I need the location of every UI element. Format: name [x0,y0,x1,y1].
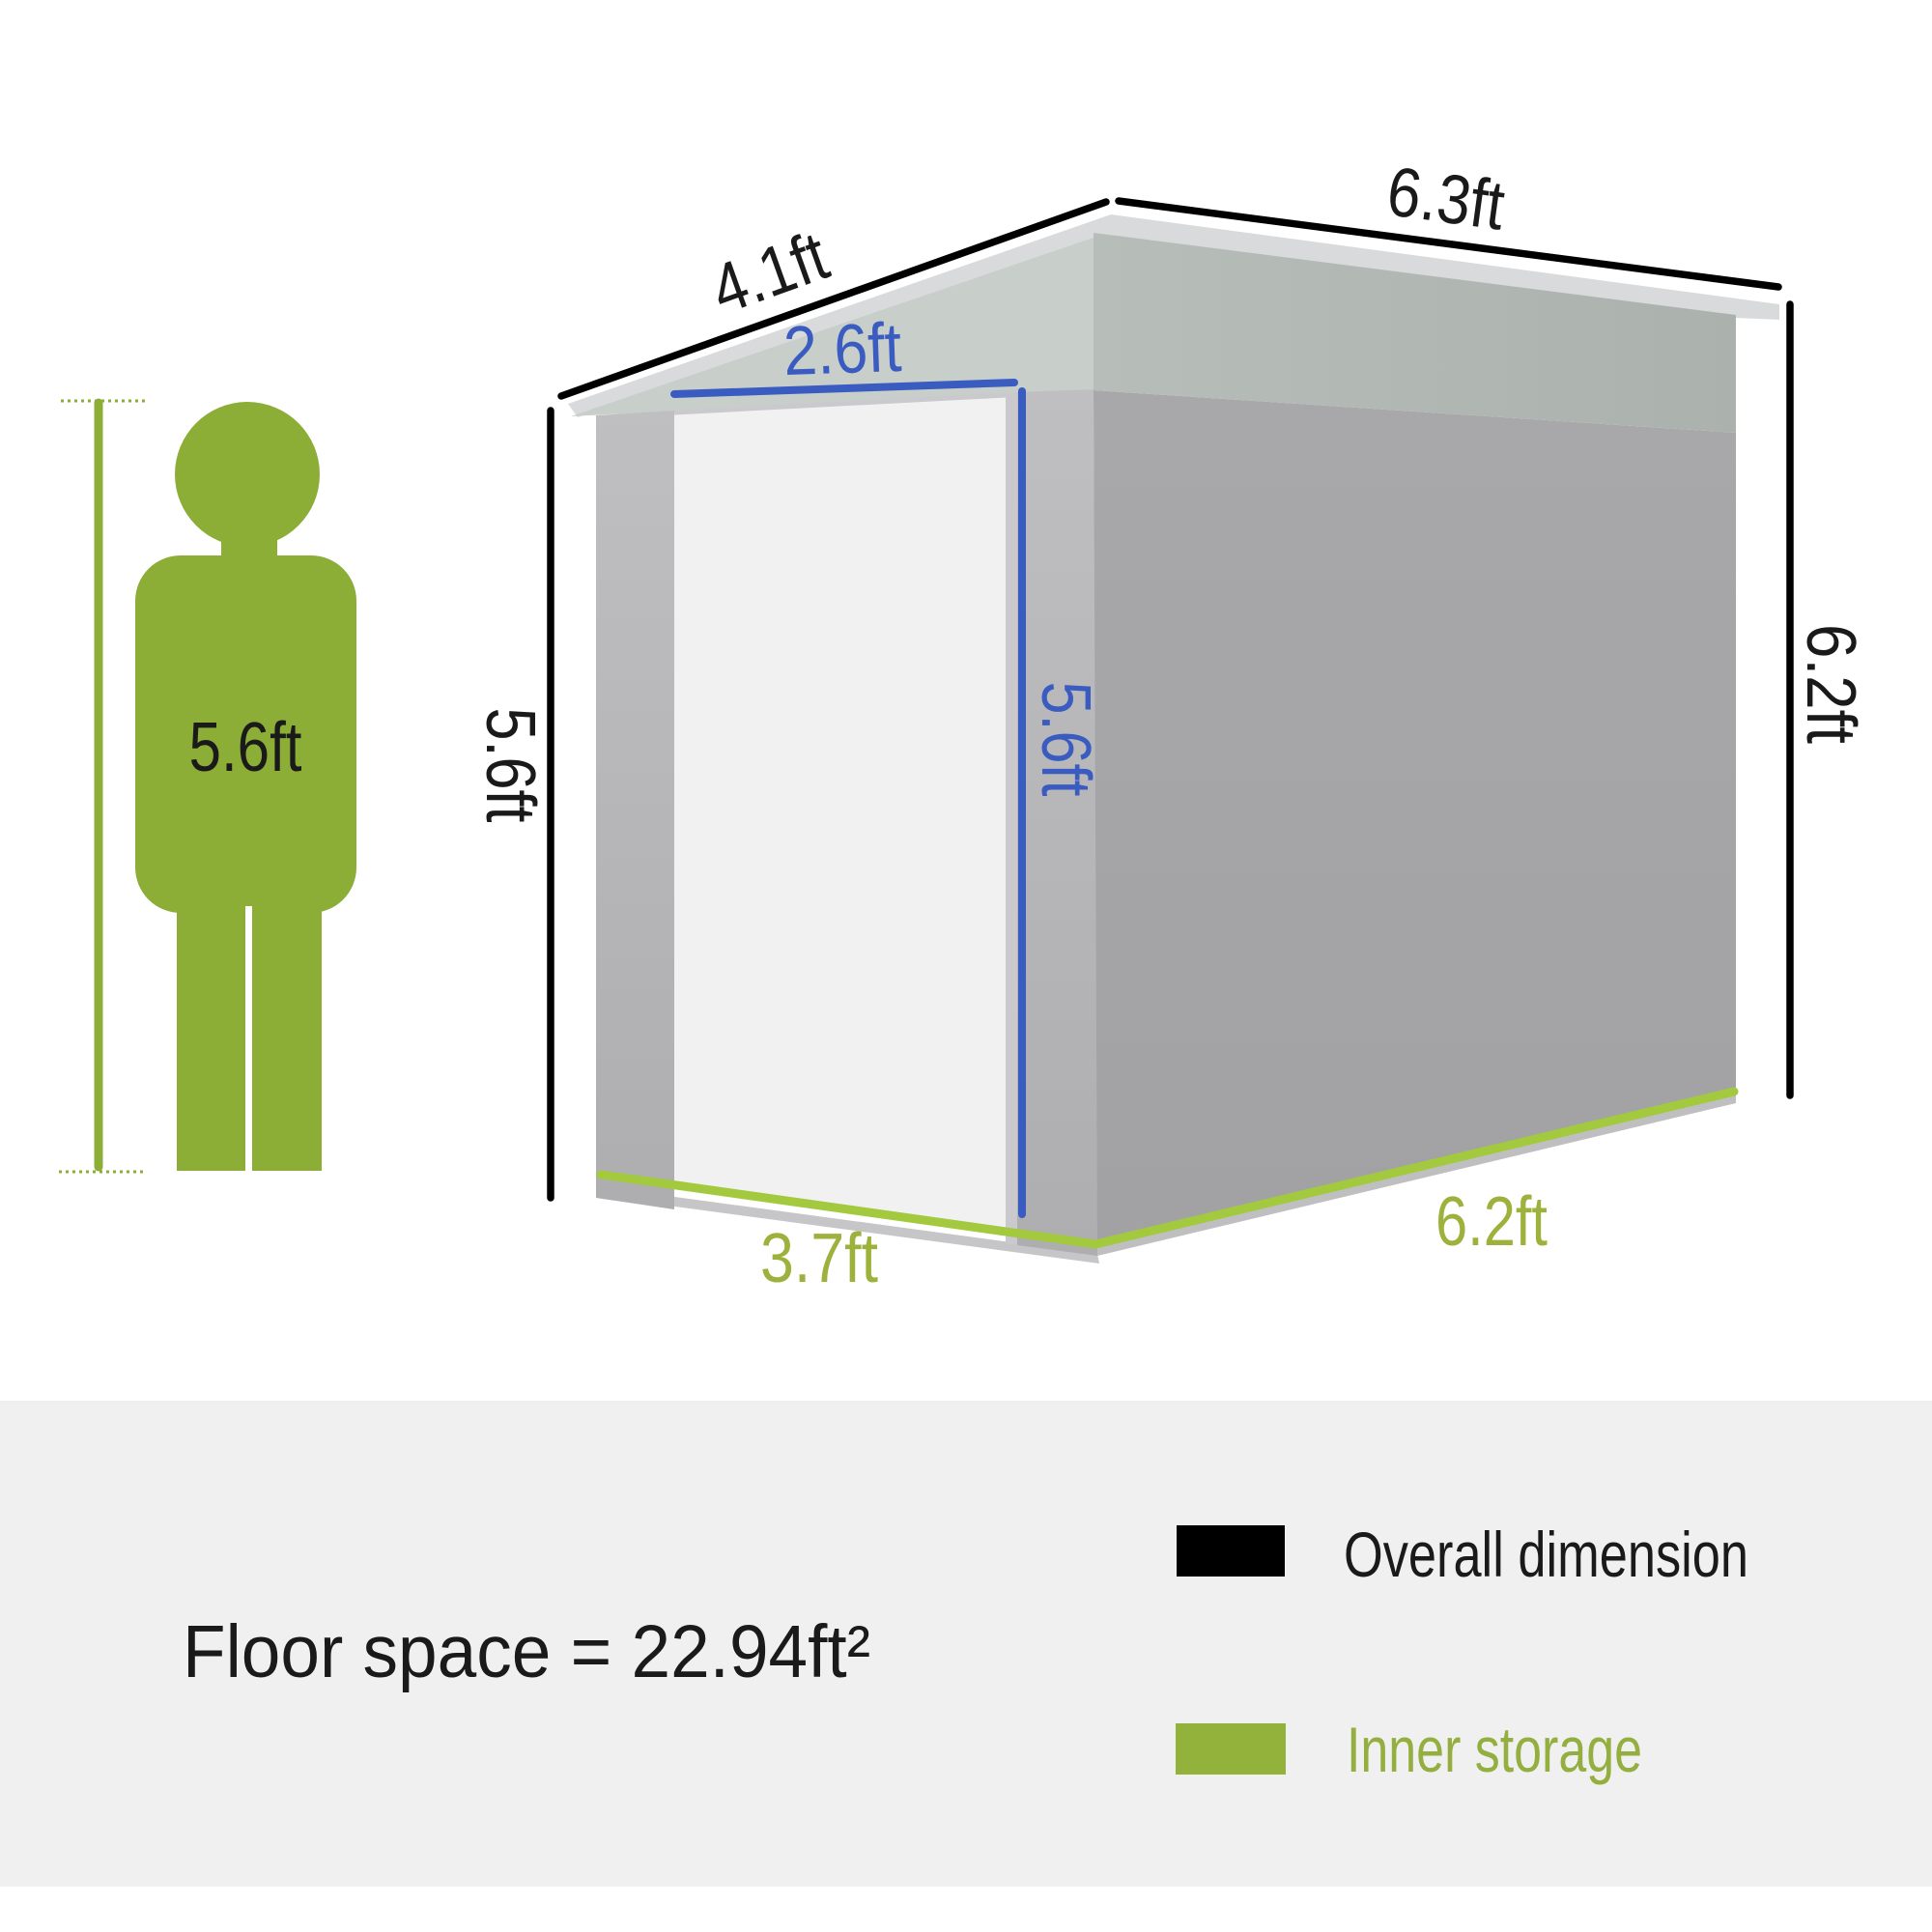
svg-text:5.6ft: 5.6ft [471,708,549,823]
svg-text:5.6ft: 5.6ft [1027,682,1104,797]
svg-text:Inner storage: Inner storage [1347,1714,1642,1785]
svg-text:Overall dimension: Overall dimension [1344,1519,1748,1590]
svg-text:6.3ft: 6.3ft [1382,153,1509,244]
svg-text:3.7ft: 3.7ft [760,1220,878,1297]
svg-text:6.2ft: 6.2ft [1435,1183,1548,1261]
svg-text:5.6ft: 5.6ft [189,709,302,786]
svg-text:2.6ft: 2.6ft [782,309,903,390]
svg-text:Floor space = 22.94ft²: Floor space = 22.94ft² [183,1610,870,1693]
svg-text:6.2ft: 6.2ft [1792,624,1869,744]
